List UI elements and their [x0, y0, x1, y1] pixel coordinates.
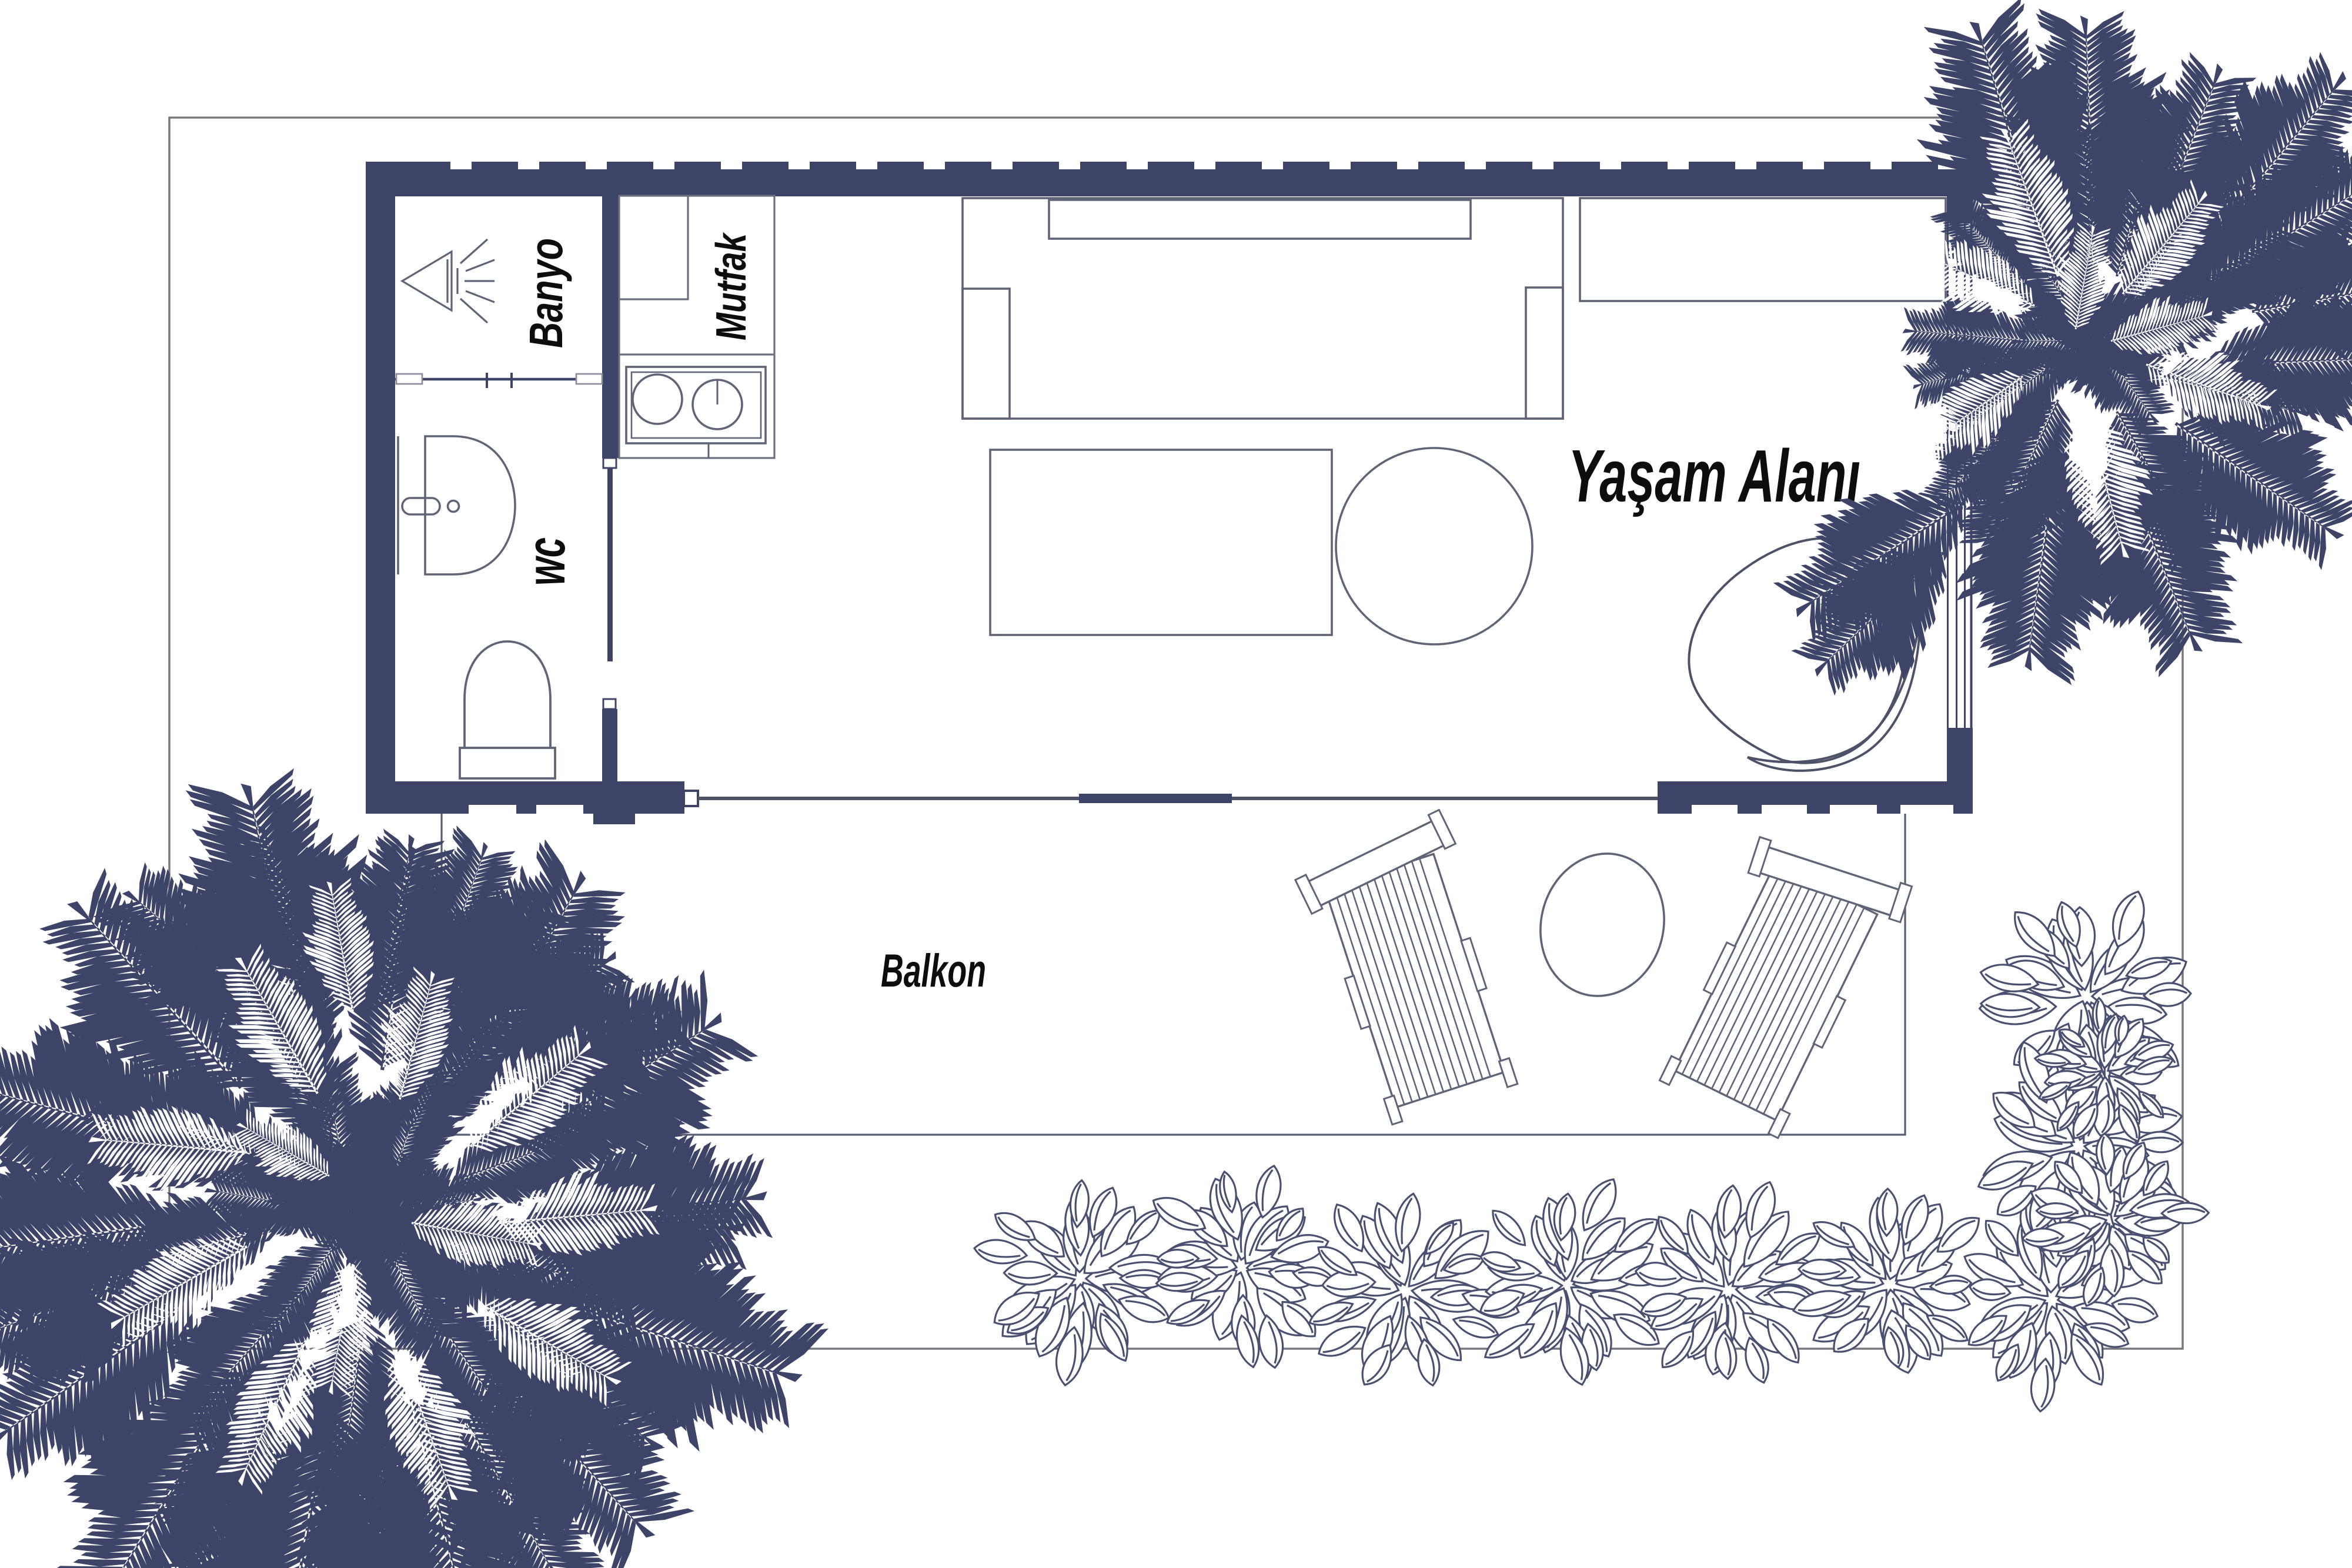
svg-text:Balkon: Balkon: [881, 944, 986, 997]
svg-text:wc: wc: [516, 537, 576, 586]
svg-text:Mutfak: Mutfak: [708, 232, 755, 340]
svg-text:Yaşam Alanı: Yaşam Alanı: [1568, 434, 1860, 517]
svg-text:Banyo: Banyo: [520, 238, 572, 348]
